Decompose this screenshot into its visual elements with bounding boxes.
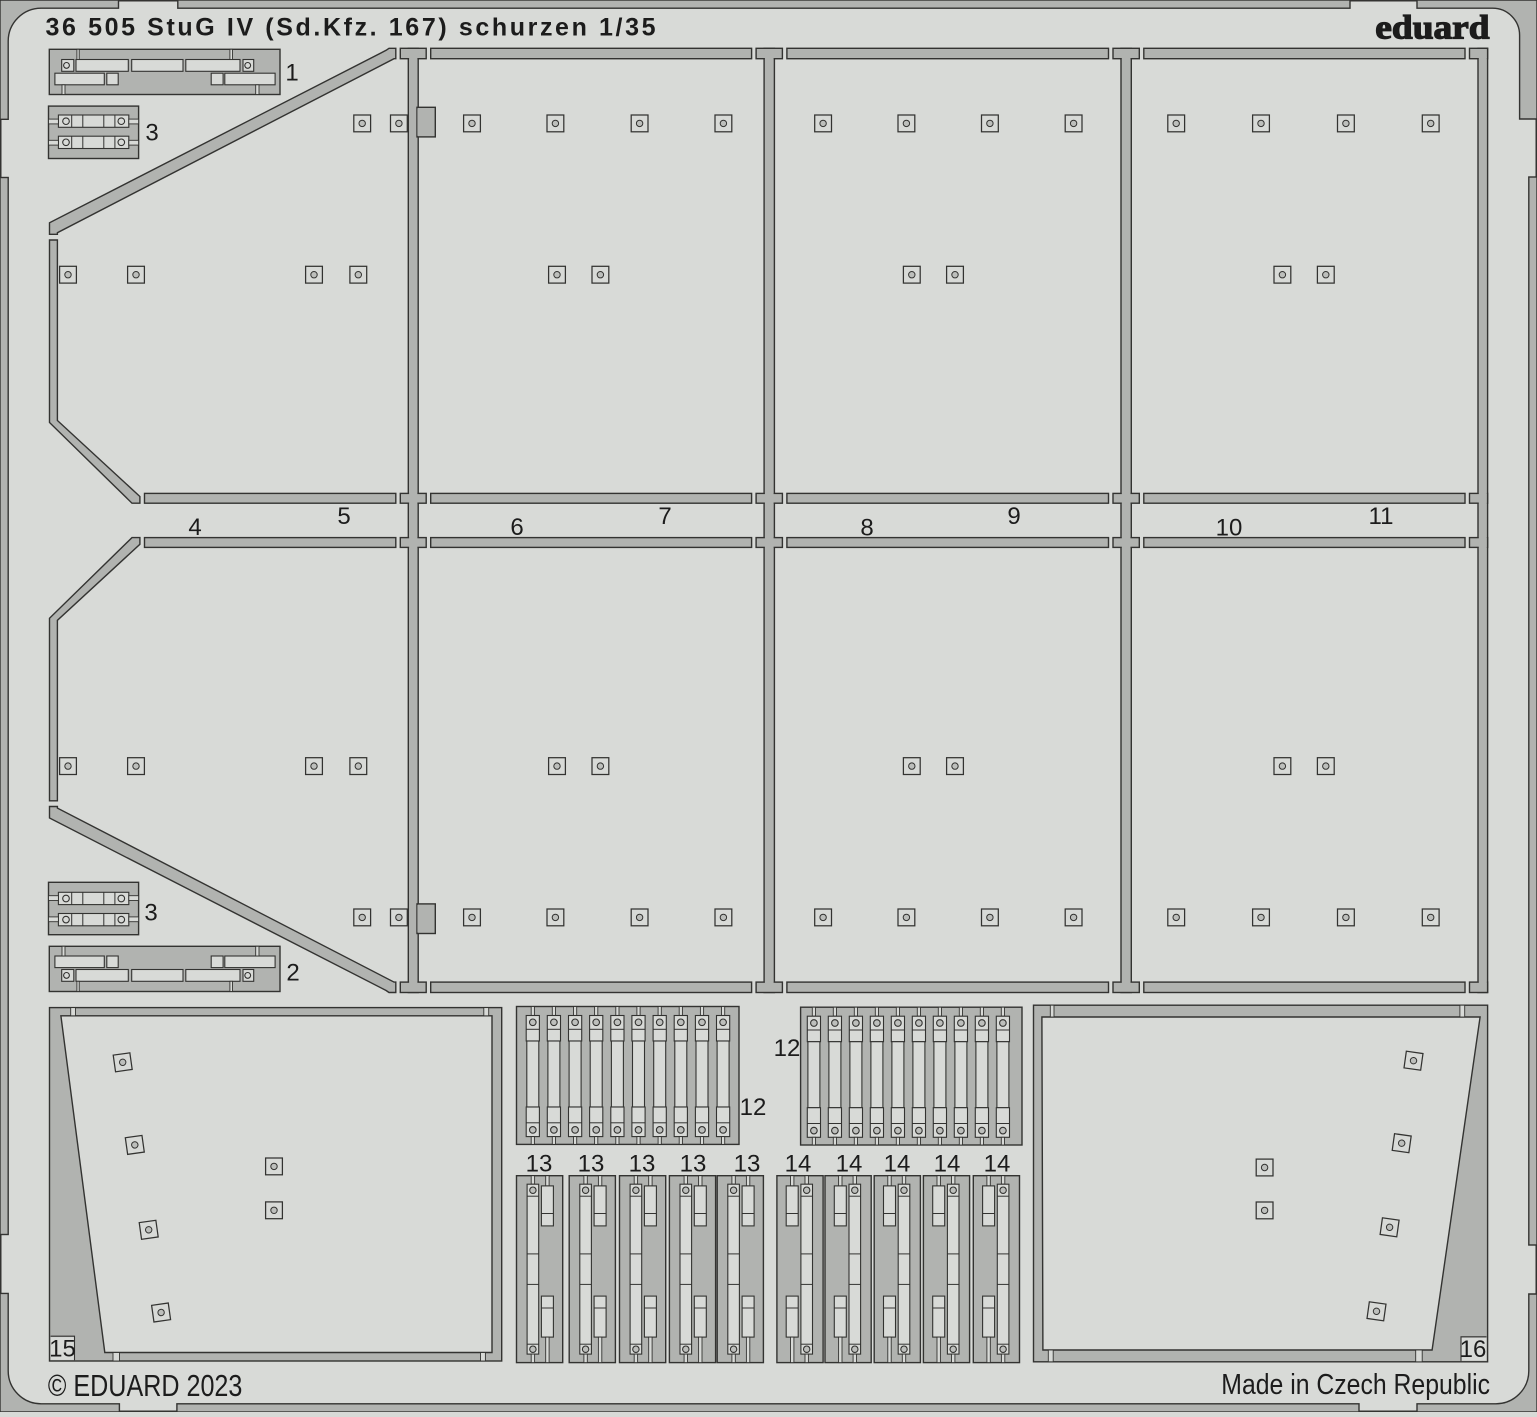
svg-text:1: 1 [285,60,298,87]
svg-text:16: 16 [1460,1336,1487,1363]
svg-text:15: 15 [49,1336,76,1363]
svg-text:2: 2 [286,960,299,987]
svg-text:36 505 StuG IV (Sd.Kfz. 167): 36 505 StuG IV (Sd.Kfz. 167) schurzen 1/… [46,13,656,41]
svg-text:6: 6 [510,514,523,541]
svg-text:© EDUARD 2023: © EDUARD 2023 [48,1368,243,1403]
svg-text:14: 14 [934,1151,961,1178]
svg-text:5: 5 [337,503,350,530]
svg-text:14: 14 [785,1151,812,1178]
svg-text:11: 11 [1369,503,1394,530]
svg-text:13: 13 [526,1151,553,1178]
svg-text:12: 12 [740,1094,767,1121]
svg-text:eduard: eduard [1375,10,1489,47]
svg-text:13: 13 [629,1151,656,1178]
svg-text:7: 7 [658,503,671,530]
svg-text:10: 10 [1216,515,1243,542]
svg-text:13: 13 [578,1151,605,1178]
svg-text:4: 4 [188,514,201,541]
svg-text:Made in Czech Republic: Made in Czech Republic [1221,1369,1490,1401]
svg-text:9: 9 [1007,503,1020,530]
svg-text:3: 3 [145,120,158,147]
svg-text:13: 13 [734,1151,761,1178]
svg-text:3: 3 [144,900,157,927]
svg-text:8: 8 [860,515,873,542]
svg-text:14: 14 [836,1151,863,1178]
svg-text:12: 12 [774,1035,801,1062]
svg-text:13: 13 [680,1151,707,1178]
svg-text:14: 14 [984,1151,1011,1178]
svg-text:14: 14 [884,1151,911,1178]
